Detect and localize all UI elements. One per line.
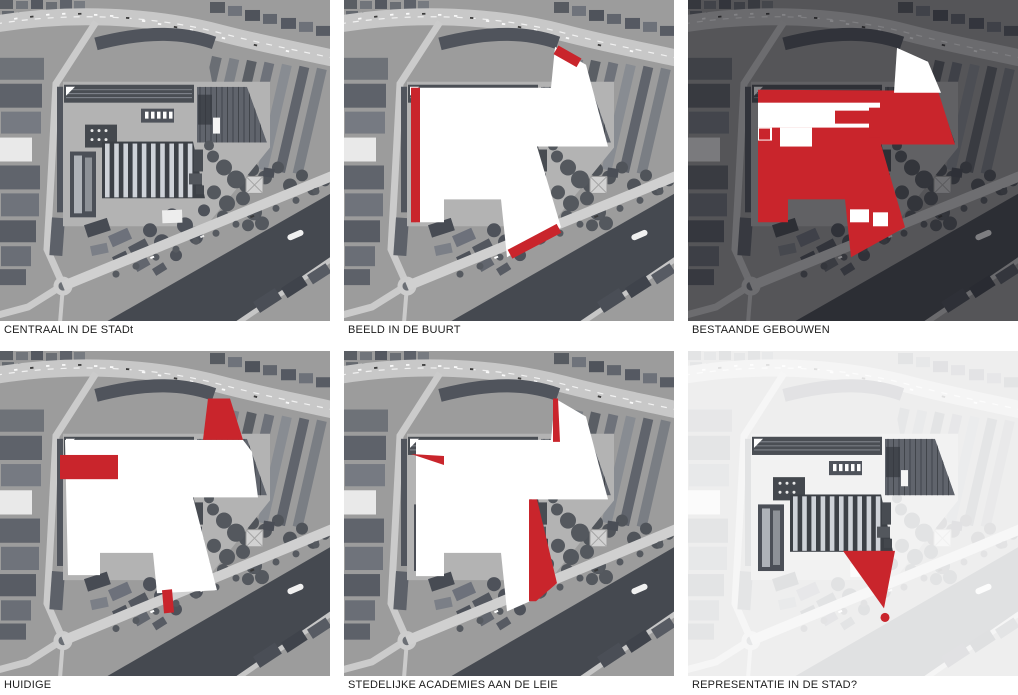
panel-beeld-in-de-buurt <box>344 0 674 321</box>
caption-huidige: HUIDIGE <box>0 676 330 695</box>
red-bar-bottom <box>162 589 174 613</box>
panel-huidige <box>0 351 330 676</box>
red-building-inside-band <box>759 129 770 140</box>
red-building-inside-band <box>835 111 870 124</box>
caption-representatie-in-de-stad: REPRESENTATIE IN DE STAD? <box>688 676 1018 695</box>
aerial-darkened <box>688 0 1018 321</box>
red-building-block-left <box>60 455 118 479</box>
caption-bestaande-gebouwen: BESTAANDE GEBOUWEN <box>688 321 1018 351</box>
analysis-sheet: CENTRAAL IN DE STADt BEELD IN DE BUURT B… <box>0 0 1018 695</box>
aerial-with-massing <box>344 0 674 321</box>
viewpoint-dot <box>881 613 890 622</box>
aerial-with-massing <box>0 351 330 676</box>
caption-centraal-in-de-stad: CENTRAAL IN DE STADt <box>0 321 330 351</box>
caption-stedelijke-academies: STEDELIJKE ACADEMIES AAN DE LEIE <box>344 676 674 695</box>
courtyard-white-patch <box>850 209 869 222</box>
red-accent-left-edge <box>411 88 420 223</box>
aerial-faded <box>688 351 1018 676</box>
caption-beeld-in-de-buurt: BEELD IN DE BUURT <box>344 321 674 351</box>
red-building-inside-band <box>869 108 880 138</box>
courtyard-white-patch <box>873 212 888 226</box>
aerial-with-massing <box>344 351 674 676</box>
panel-centraal-in-de-stad <box>0 0 330 321</box>
courtyard-white-tongue <box>780 128 812 147</box>
aerial-plain <box>0 0 330 321</box>
panel-representatie-in-de-stad <box>688 351 1018 676</box>
panel-bestaande-gebouwen <box>688 0 1018 321</box>
panel-stedelijke-academies <box>344 351 674 676</box>
